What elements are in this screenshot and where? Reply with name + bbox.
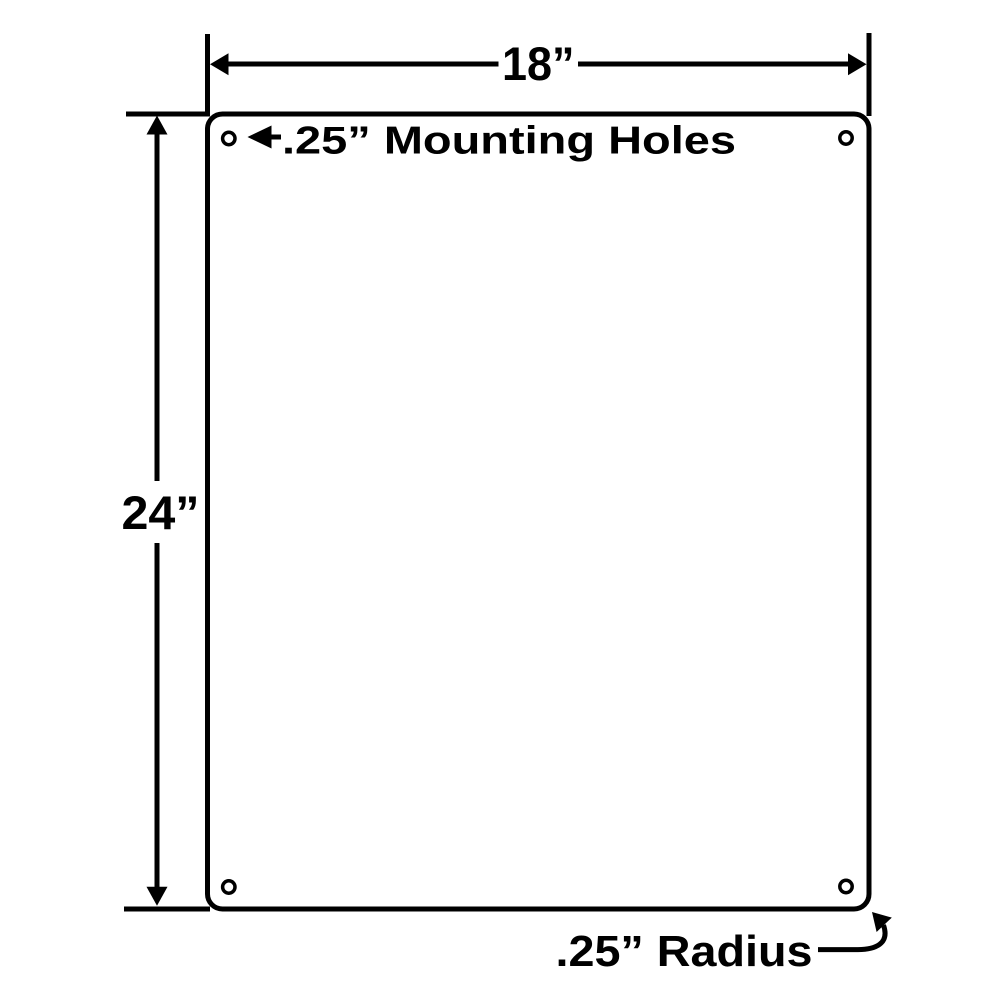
svg-text:18”: 18”: [502, 37, 575, 90]
svg-text:.25” Radius: .25” Radius: [556, 927, 813, 976]
svg-text:.25” Mounting Holes: .25” Mounting Holes: [282, 119, 736, 162]
svg-text:24”: 24”: [122, 486, 200, 539]
